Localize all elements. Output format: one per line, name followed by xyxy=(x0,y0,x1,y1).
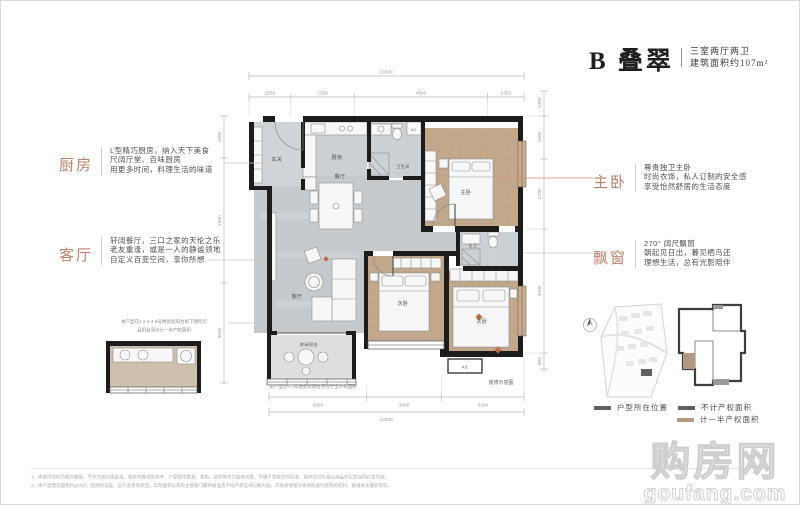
compass-icon xyxy=(584,318,597,332)
legend-label: 户型所在位置 xyxy=(617,402,668,413)
svg-text:600: 600 xyxy=(537,357,543,365)
disclaimer-line-1: 1、本宣传资料为要约邀请，不作为要约或承诺，相关内容仅供参考；户型图中家具、家电… xyxy=(31,473,771,482)
legend-label: 计一半产权面积 xyxy=(700,414,760,425)
note-full-area: 本户型在6·7号楼此处阳台须分计全产权面积 xyxy=(269,383,357,390)
footer-divider xyxy=(31,468,771,469)
svg-text:10200: 10200 xyxy=(379,417,393,423)
flyer-page: 玄关 厨房 餐厅 卫生间 客厅 休闲阳台 主卧 主卫 次卧 次卧 AC AC xyxy=(0,0,800,505)
text-line: 老友重逢，或是一人的静谧领地 xyxy=(110,245,221,254)
detail-balcony xyxy=(106,341,201,393)
room-label-ac-bottom: AC xyxy=(461,365,469,370)
room-label-master: 主卧 xyxy=(460,189,471,196)
legend-item-half: 计一半产权面积 xyxy=(677,414,760,425)
note-half-area-1: 本户型在1·2·3·4·5号楼此处阳台如下图所示 xyxy=(121,318,208,325)
svg-text:1600: 1600 xyxy=(537,131,543,142)
svg-text:3500: 3500 xyxy=(537,285,543,296)
annotation-master: 主卧 尊贵独卫主卧 时尚衣饰，私人订制的安全感 享受怡然舒居的生活态度 xyxy=(593,163,747,192)
svg-text:3900: 3900 xyxy=(312,403,323,409)
svg-text:2700: 2700 xyxy=(537,188,543,199)
note-half-area-2: 且阳台须分计一半产权面积 xyxy=(137,327,191,334)
annotation-bay-window: 飘窗 270° 阔尺飘窗 朝起见日出，暮见栖鸟还 理想生活，总有光影陪伴 xyxy=(593,239,731,268)
legend-swatch-dark xyxy=(678,406,695,410)
annotation-living-label: 客厅 xyxy=(59,244,93,265)
text-line: 270° 阔尺飘窗 xyxy=(644,239,731,248)
text-line: 尊贵独卫主卧 xyxy=(644,163,747,172)
annotation-divider xyxy=(101,237,102,265)
text-line: 轩阔餐厅，三口之家的天伦之乐 xyxy=(110,236,221,245)
annotation-divider xyxy=(101,147,102,175)
room-label-ac-top: AC xyxy=(411,128,417,132)
svg-text:3500: 3500 xyxy=(217,327,223,338)
disclaimer-line-2: 2、本户型建筑面积约107㎡，因测绘误差、设计变更等原因，实际面积以政府主管部门… xyxy=(31,482,771,491)
disclaimer-text: 1、本宣传资料为要约邀请，不作为要约或承诺，相关内容仅供参考；户型图中家具、家电… xyxy=(31,473,771,490)
page-title: B 叠翠 xyxy=(589,41,674,77)
annotation-living-text: 轩阔餐厅，三口之家的天伦之乐 老友重逢，或是一人的静谧领地 自定义百变空间，享你… xyxy=(110,236,221,265)
room-label-bath: 卫生间 xyxy=(396,163,410,169)
annotation-master-label: 主卧 xyxy=(593,171,627,192)
annotation-bay-text: 270° 阔尺飘窗 朝起见日出，暮见栖鸟还 理想生活，总有光影陪伴 xyxy=(644,239,731,268)
site-plan-sketch xyxy=(601,304,667,397)
svg-text:1500: 1500 xyxy=(217,131,223,142)
text-line: 时尚衣饰，私人订制的安全感 xyxy=(644,172,747,181)
annotation-kitchen: 厨房 L型精巧厨房，纳入天下美食 尺阔厅堂、百味厨房 用更多时间，料理生活的味道 xyxy=(59,146,213,175)
annotation-living: 客厅 轩阔餐厅，三口之家的天伦之乐 老友重逢，或是一人的静谧领地 自定义百变空间… xyxy=(59,236,221,265)
text-line: 自定义百变空间，享你所想 xyxy=(110,255,221,264)
legend-item-excluded: 不计产权面积 xyxy=(678,402,752,413)
text-line: 朝起见日出，暮见栖鸟还 xyxy=(644,248,731,257)
room-label-bedroom-b: 次卧 xyxy=(397,300,408,307)
legend-label: 不计产权面积 xyxy=(701,402,752,413)
unit-area: 建筑面积约107m² xyxy=(690,58,768,70)
text-line: 理想生活，总有光影陪伴 xyxy=(644,258,731,267)
annotation-kitchen-label: 厨房 xyxy=(59,154,93,175)
text-line: 享受怡然舒居的生活态度 xyxy=(644,182,747,191)
svg-text:3300: 3300 xyxy=(477,403,488,409)
legend-item-location: 户型所在位置 xyxy=(594,402,668,413)
header-subtitle: 三室两厅两卫 建筑面积约107m² xyxy=(690,46,768,69)
legend-swatch-dark xyxy=(594,406,611,410)
svg-text:1550: 1550 xyxy=(265,91,276,97)
svg-text:10200: 10200 xyxy=(379,70,393,76)
room-label-master-bath: 主卫 xyxy=(469,242,478,248)
room-label-entry: 玄关 xyxy=(271,156,282,163)
annotation-master-text: 尊贵独卫主卧 时尚衣饰，私人订制的安全感 享受怡然舒居的生活态度 xyxy=(644,163,747,192)
room-label-bedroom-c: 次卧 xyxy=(476,318,487,325)
plan-caption: 装修示意图 xyxy=(488,379,513,386)
annotation-kitchen-text: L型精巧厨房，纳入天下美食 尺阔厅堂、百味厨房 用更多时间，料理生活的味道 xyxy=(110,146,213,175)
svg-text:1000: 1000 xyxy=(537,97,543,108)
unit-location-marker xyxy=(641,369,652,376)
room-label-balcony: 休闲阳台 xyxy=(300,341,319,348)
annotation-divider xyxy=(635,240,636,268)
unit-spec: 三室两厅两卫 xyxy=(690,46,768,58)
svg-text:1350: 1350 xyxy=(500,91,511,97)
text-line: 尺阔厅堂、百味厨房 xyxy=(110,155,213,164)
svg-text:3000: 3000 xyxy=(399,403,410,409)
text-line: 用更多时间，料理生活的味道 xyxy=(110,165,213,174)
key-plan xyxy=(679,305,745,385)
room-label-kitchen: 厨房 xyxy=(331,154,342,161)
legend-swatch-tan xyxy=(677,418,694,422)
svg-text:2350: 2350 xyxy=(317,91,328,97)
room-label-living: 客厅 xyxy=(291,293,302,300)
room-label-dining: 餐厅 xyxy=(334,173,345,180)
annotation-divider xyxy=(635,164,636,192)
text-line: L型精巧厨房，纳入天下美食 xyxy=(110,146,213,155)
annotation-bay-label: 飘窗 xyxy=(593,247,627,268)
svg-text:4400: 4400 xyxy=(217,215,223,226)
svg-text:4950: 4950 xyxy=(416,91,427,97)
header-divider xyxy=(681,48,682,67)
